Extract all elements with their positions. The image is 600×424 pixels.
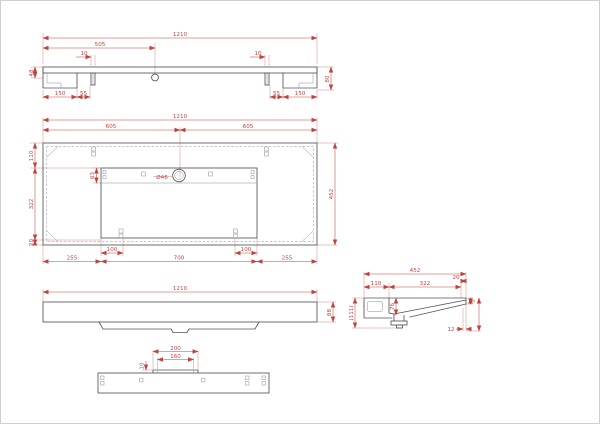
side-profile-outline bbox=[364, 298, 466, 318]
overflow-hole-circle bbox=[152, 74, 159, 81]
dim-plan-half-right: 605 bbox=[243, 124, 254, 130]
dim-plan-slot-height: 63 bbox=[90, 172, 96, 180]
dim-section-clip-left: 10 bbox=[80, 51, 88, 57]
dim-section-height-left: 48 bbox=[29, 69, 35, 77]
dim-plan-depth: 452 bbox=[329, 189, 335, 200]
countertop-hatched-wall bbox=[43, 67, 317, 73]
basin-recess bbox=[101, 168, 257, 238]
dim-section-overall: 1210 bbox=[173, 32, 188, 38]
dim-section-hole-offset: 505 bbox=[95, 42, 106, 48]
dim-plan-seg-center: 700 bbox=[174, 256, 185, 262]
left-end-block bbox=[43, 67, 77, 88]
dim-plan-half-left: 605 bbox=[106, 124, 117, 130]
rail-center-tab bbox=[153, 370, 198, 373]
extension-lines bbox=[31, 33, 334, 99]
dim-plan-front-edge: 110 bbox=[29, 150, 35, 161]
bottom-tab-slots bbox=[119, 229, 238, 238]
extension-lines bbox=[43, 289, 336, 322]
view-bottom-rail: 200 160 10 bbox=[98, 346, 269, 393]
wall-cavity bbox=[368, 302, 383, 312]
view-side-section: 452 110 322 20 (111) 76 5 12 bbox=[349, 268, 481, 333]
dim-front-height: 88 bbox=[327, 309, 333, 317]
rail-hole-squares bbox=[101, 376, 266, 385]
basin-underside-profile bbox=[99, 322, 259, 333]
dim-plan-overall: 1210 bbox=[173, 114, 188, 120]
extension-lines bbox=[30, 117, 338, 264]
dim-plan-seg-right: 255 bbox=[282, 256, 293, 262]
dim-section-end-left: 150 bbox=[55, 91, 66, 97]
dim-plan-drain-diameter: Ø46 bbox=[156, 174, 168, 181]
view-length-section: 1210 505 10 10 48 80 150 55 55 150 bbox=[29, 32, 334, 99]
dim-plan-tab-left: 100 bbox=[107, 247, 118, 253]
technical-drawing-page: 1210 505 10 10 48 80 150 55 55 150 bbox=[0, 0, 600, 424]
dim-section-height-right: 80 bbox=[325, 75, 331, 83]
dim-rail-tab-inner: 160 bbox=[170, 354, 181, 360]
technical-drawing-canvas: 1210 505 10 10 48 80 150 55 55 150 bbox=[0, 0, 600, 424]
dim-section-end-right: 150 bbox=[295, 91, 306, 97]
dim-side-offset: 12 bbox=[447, 327, 454, 333]
dim-side-overall: 452 bbox=[410, 268, 421, 274]
dim-plan-back-edge: 20 bbox=[29, 239, 35, 247]
dim-section-slot-right: 55 bbox=[273, 91, 281, 97]
dim-side-basin: 322 bbox=[420, 281, 431, 287]
dim-side-total-height: (111) bbox=[349, 305, 355, 320]
dim-plan-tab-right: 100 bbox=[241, 247, 252, 253]
view-front-elevation: 1210 88 bbox=[43, 286, 336, 333]
view-plan: 1210 605 605 110 322 20 452 Ø46 63 100 1… bbox=[29, 114, 338, 264]
dim-side-back: 110 bbox=[371, 281, 382, 287]
overflow-slot-squares bbox=[103, 171, 254, 179]
rail-body bbox=[98, 373, 269, 393]
dim-section-clip-right: 10 bbox=[254, 51, 262, 57]
dim-plan-seg-left: 255 bbox=[67, 256, 78, 262]
dim-rail-tab-height: 10 bbox=[140, 362, 146, 370]
drain-trap bbox=[394, 314, 404, 321]
front-slab bbox=[43, 302, 317, 322]
dim-side-basin-depth: 76 bbox=[390, 303, 396, 311]
dim-side-edge: 5 bbox=[471, 299, 477, 303]
dim-front-overall: 1210 bbox=[173, 286, 188, 292]
right-end-block bbox=[283, 67, 317, 88]
dim-side-lip: 20 bbox=[452, 275, 460, 281]
dim-plan-basin-depth: 322 bbox=[29, 199, 35, 210]
dim-section-slot-left: 55 bbox=[80, 91, 88, 97]
dim-rail-tab-outer: 200 bbox=[170, 346, 181, 352]
